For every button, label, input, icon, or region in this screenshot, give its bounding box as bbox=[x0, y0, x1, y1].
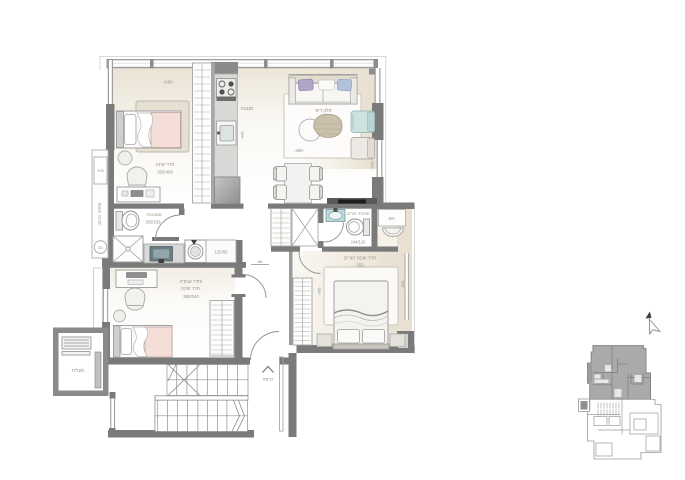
svg-text:חדר שינה.: חדר שינה. bbox=[181, 286, 201, 291]
svg-text:חדר שינה: חדר שינה bbox=[156, 162, 175, 167]
svg-text:302/408: 302/408 bbox=[157, 170, 173, 175]
svg-text:שירותי הורים: שירותי הורים bbox=[347, 211, 369, 216]
svg-text:חדר שינה הורים: חדר שינה הורים bbox=[344, 257, 376, 262]
svg-text:כניסה: כניסה bbox=[263, 377, 274, 382]
svg-text:-425-: -425- bbox=[400, 279, 405, 289]
svg-text:מטבח: מטבח bbox=[241, 106, 255, 112]
svg-text:380/240: 380/240 bbox=[183, 294, 199, 299]
svg-text:אמבטיה: אמבטיה bbox=[146, 212, 161, 217]
svg-text:-88-: -88- bbox=[256, 259, 264, 264]
svg-text:-265-: -265- bbox=[370, 160, 375, 170]
svg-text:מעלית: מעלית bbox=[72, 368, 85, 373]
svg-text:244/120: 244/120 bbox=[351, 240, 367, 245]
svg-text:סלון דיור: סלון דיור bbox=[314, 107, 331, 114]
svg-text:3/1: 3/1 bbox=[98, 246, 103, 250]
svg-text:-60-: -60- bbox=[388, 216, 396, 221]
svg-text:-490-: -490- bbox=[294, 148, 305, 153]
svg-text:135/65: 135/65 bbox=[215, 250, 228, 255]
svg-text:-245-: -245- bbox=[163, 80, 174, 85]
svg-text:מ.א: מ.א bbox=[97, 168, 104, 173]
svg-text:מסתור כביסה: מסתור כביסה bbox=[97, 202, 102, 225]
svg-text:חדר עבודה/: חדר עבודה/ bbox=[180, 279, 204, 284]
svg-text:-430-: -430- bbox=[240, 130, 245, 140]
svg-text:-305-: -305- bbox=[317, 286, 322, 296]
svg-text:305/165: 305/165 bbox=[145, 220, 161, 225]
